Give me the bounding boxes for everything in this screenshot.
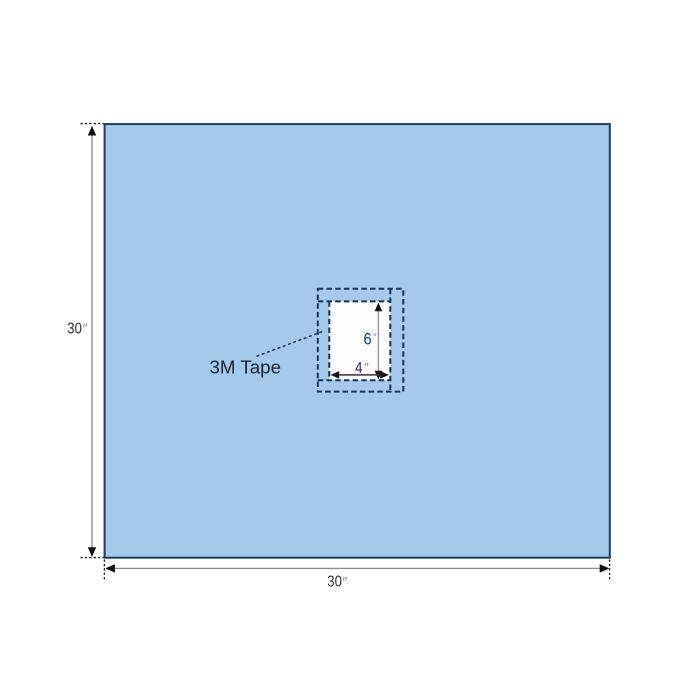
svg-text:6: 6 [364,331,372,349]
svg-text:30: 30 [327,574,342,591]
svg-text:″: ″ [342,574,347,590]
svg-text:″: ″ [83,320,88,336]
svg-text:4: 4 [355,360,362,377]
svg-text:30: 30 [67,320,82,337]
svg-text:3M Tape: 3M Tape [210,356,282,377]
svg-text:″: ″ [364,361,369,375]
svg-text:″: ″ [373,332,377,343]
